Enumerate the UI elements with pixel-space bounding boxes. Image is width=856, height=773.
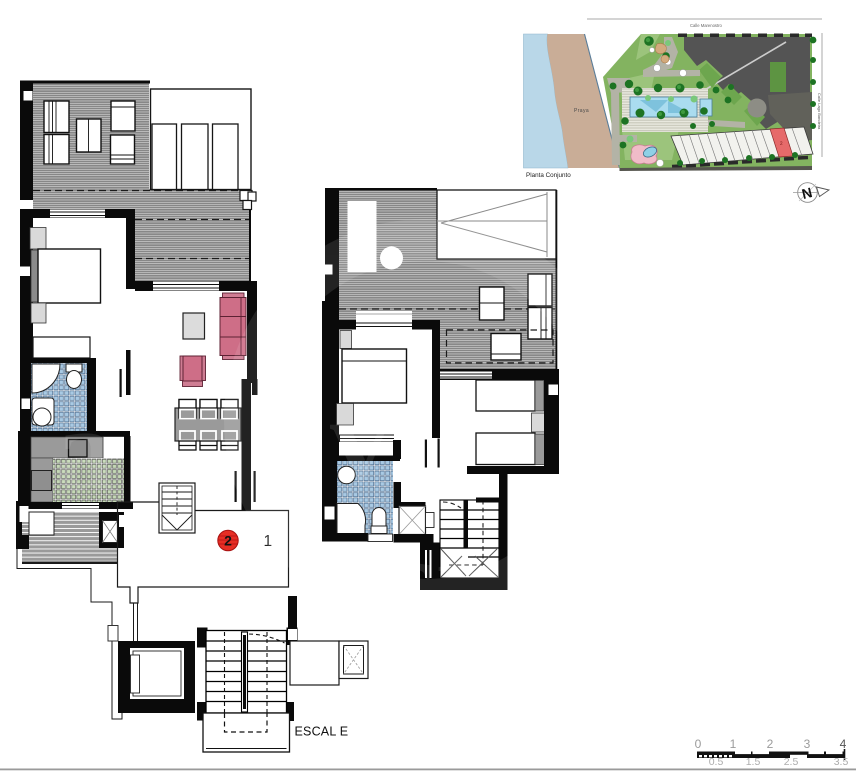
svg-text:4: 4 [840,737,847,751]
svg-text:Calle Marenostro: Calle Marenostro [690,23,723,28]
svg-text:Planta Conjunto: Planta Conjunto [526,172,571,179]
svg-text:0: 0 [695,737,702,751]
svg-text:1: 1 [264,533,273,550]
svg-text:1: 1 [730,737,737,751]
svg-text:3: 3 [804,737,811,751]
svg-text:Calle Lago Bandeira: Calle Lago Bandeira [817,93,822,130]
svg-text:Praya: Praya [574,108,589,114]
svg-text:1.5: 1.5 [746,756,761,768]
svg-text:2: 2 [224,533,232,549]
svg-text:2: 2 [767,737,774,751]
svg-text:2.5: 2.5 [784,756,799,768]
svg-text:ESCAL E: ESCAL E [295,725,349,739]
svg-text:0.5: 0.5 [709,756,724,768]
svg-text:3.5: 3.5 [834,756,849,768]
